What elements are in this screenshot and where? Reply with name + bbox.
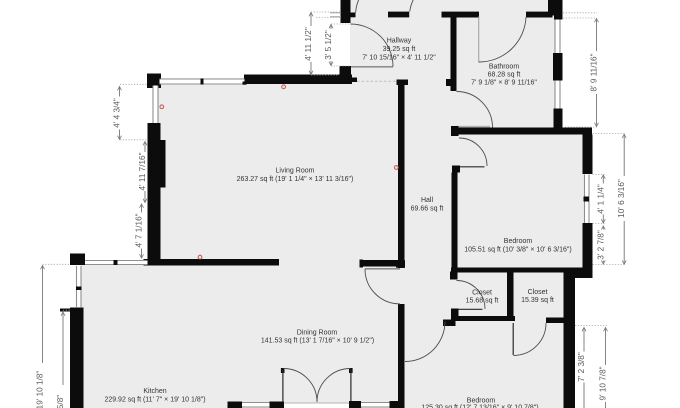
svg-text:Living Room: Living Room — [276, 168, 315, 175]
svg-text:105.51 sq ft (10' 3/8" × 10' 6: 105.51 sq ft (10' 3/8" × 10' 6 3/16") — [464, 247, 571, 254]
svg-text:4' 1 1/4": 4' 1 1/4" — [596, 184, 605, 214]
svg-text:15.68 sq ft: 15.68 sq ft — [466, 298, 499, 305]
svg-text:3' 2 7/8": 3' 2 7/8" — [596, 230, 605, 260]
svg-text:Closet: Closet — [528, 289, 548, 296]
svg-text:39.25 sq ft: 39.25 sq ft — [383, 46, 416, 53]
svg-text:263.27 sq ft (19' 1 1/4" × 13': 263.27 sq ft (19' 1 1/4" × 13' 11 3/16") — [237, 176, 354, 183]
svg-text:7' 2 3/8": 7' 2 3/8" — [577, 352, 586, 382]
svg-text:Kitchen: Kitchen — [143, 388, 166, 395]
svg-text:Bedroom: Bedroom — [467, 398, 496, 405]
svg-text:229.92 sq ft (11' 7" × 19' 10: 229.92 sq ft (11' 7" × 19' 10 1/8") — [104, 397, 205, 404]
svg-text:15.39 sq ft: 15.39 sq ft — [521, 297, 554, 304]
svg-text:141.53 sq ft (13' 1 7/16" × 10: 141.53 sq ft (13' 1 7/16" × 10' 9 1/2") — [261, 338, 374, 345]
svg-text:69.66 sq ft: 69.66 sq ft — [411, 206, 444, 213]
svg-text:4' 7 1/16": 4' 7 1/16" — [135, 213, 144, 247]
svg-text:Hallway: Hallway — [387, 38, 412, 45]
svg-text:4' 11 1/2": 4' 11 1/2" — [304, 27, 313, 61]
svg-text:Bathroom: Bathroom — [489, 64, 520, 71]
svg-text:4' 11 7/16": 4' 11 7/16" — [138, 152, 147, 190]
svg-text:125.30 sq ft (12' 7 13/16" × 9: 125.30 sq ft (12' 7 13/16" × 9' 10 7/8") — [421, 405, 538, 408]
svg-text:10' 6 3/16": 10' 6 3/16" — [617, 179, 626, 218]
svg-text:9' 10 7/8": 9' 10 7/8" — [599, 366, 608, 400]
svg-text:68.28 sq ft: 68.28 sq ft — [488, 72, 521, 79]
svg-text:Closet: Closet — [472, 290, 492, 297]
svg-text:3' 5 1/2": 3' 5 1/2" — [324, 30, 333, 60]
svg-text:Hall: Hall — [421, 197, 434, 204]
svg-text:5/8": 5/8" — [56, 395, 65, 408]
svg-text:7' 10 15/16" × 4' 11 1/2": 7' 10 15/16" × 4' 11 1/2" — [362, 55, 436, 62]
svg-text:Bedroom: Bedroom — [504, 238, 533, 245]
svg-text:7' 9 1/8" × 8' 9 11/16": 7' 9 1/8" × 8' 9 11/16" — [471, 80, 537, 87]
svg-text:Dining Room: Dining Room — [297, 330, 338, 337]
svg-text:4' 4 3/4": 4' 4 3/4" — [113, 98, 122, 128]
svg-text:19' 10 1/8": 19' 10 1/8" — [36, 371, 45, 408]
svg-text:8' 9 11/16": 8' 9 11/16" — [590, 53, 599, 91]
